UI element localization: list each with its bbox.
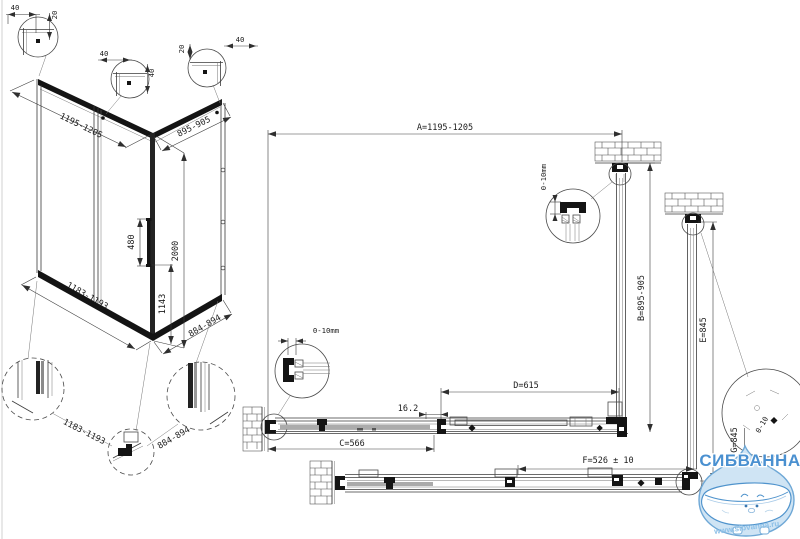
detail2-dim-h: 40 <box>100 49 109 58</box>
detail2-dim-v: 40 <box>147 69 156 78</box>
plan-track-top <box>243 402 628 451</box>
mascot-eye-left <box>745 505 748 508</box>
detail-bottom-front: 1183-1193 <box>61 417 107 447</box>
detail1-dim-h: 40 <box>11 3 20 12</box>
plan-adjust-detail-left: 0-10mm <box>275 326 340 415</box>
mascot-eye-right <box>756 505 759 508</box>
plan-view: A=1195-1205 B=895-905 <box>243 123 800 506</box>
detail1-dim-v: 20 <box>50 11 59 20</box>
dim-iso-handle-height: 1143 <box>158 294 168 314</box>
dim-B: B=895-905 <box>637 275 647 321</box>
detail3-dim-v: 20 <box>177 45 186 54</box>
dim-adjust-top: 0-10mm <box>539 163 548 190</box>
dim-D: D=615 <box>513 381 539 391</box>
bottom-detail-left <box>2 281 64 420</box>
dim-A: A=1195-1205 <box>417 123 473 133</box>
technical-drawing-page: 1195-1205 895-905 1183-1193 884-894 2000 <box>0 0 800 539</box>
dim-iso-bottom-width: 1183-1193 <box>64 281 109 312</box>
dim-C: C=566 <box>339 439 365 449</box>
plan-wall-top <box>595 142 661 185</box>
logo-watermark: СИБВАННА www.sibvanna.ru <box>699 446 800 536</box>
dim-adjust-magnifier: 0-10 <box>754 415 771 435</box>
dim-F: F=526 ± 10 <box>582 456 633 466</box>
dim-E: E=845 <box>699 317 709 343</box>
brand-name: СИБВАННА <box>699 451 800 470</box>
corner-detail-3: 20 40 <box>177 35 258 103</box>
plan-adjust-detail-top: 0-10mm <box>539 163 612 243</box>
detail-bottom-side: 884-894 <box>156 425 192 452</box>
dim-iso-height: 2000 <box>171 241 181 261</box>
shower-enclosure-drawing: 1195-1205 895-905 1183-1193 884-894 2000 <box>0 0 800 539</box>
corner-detail-1: 40 20 <box>6 3 59 76</box>
dim-iso-handle-length: 480 <box>127 234 137 249</box>
dim-iso-width: 1195-1205 <box>58 112 104 141</box>
corner-detail-2: 40 40 <box>98 49 156 114</box>
detail3-dim-h: 40 <box>236 35 245 44</box>
dim-adjust-left: 0-10mm <box>313 326 340 335</box>
bottom-detail-corner: 1183-1193 884-894 <box>52 343 192 475</box>
dim-overlap: 16.2 <box>398 404 418 414</box>
